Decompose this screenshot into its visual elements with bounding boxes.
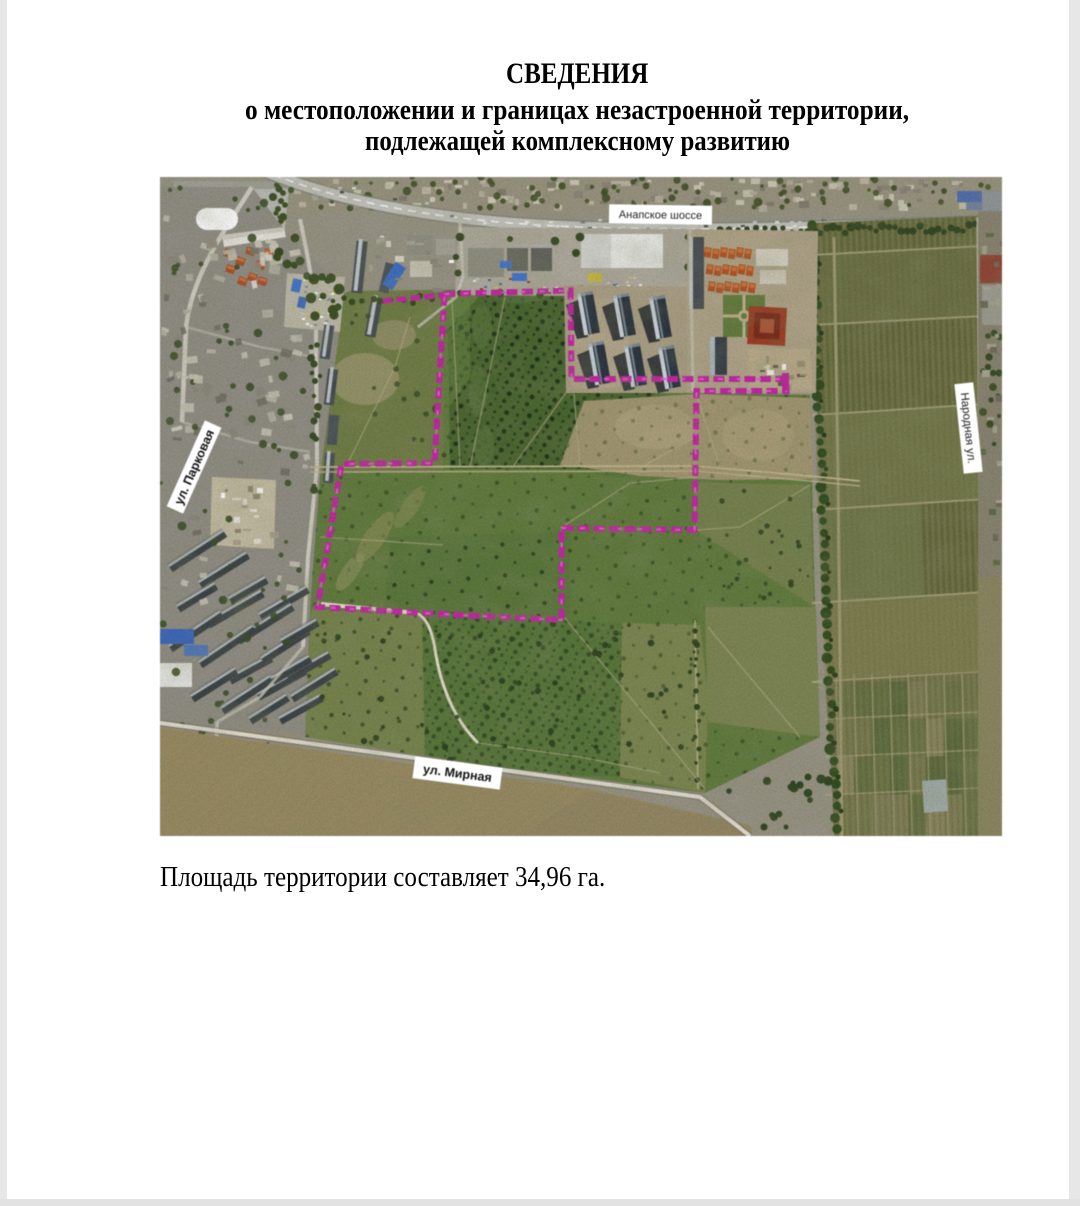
svg-text:Анапское шоссе: Анапское шоссе [619, 209, 702, 222]
